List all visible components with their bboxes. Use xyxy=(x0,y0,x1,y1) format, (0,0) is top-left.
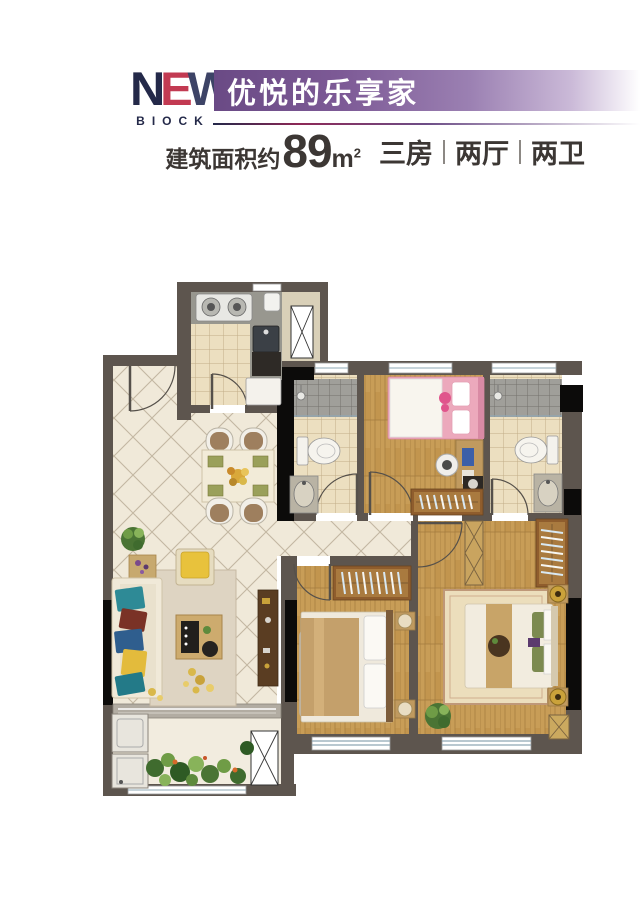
layout-summary: 三房 两厅 两卫 xyxy=(379,132,585,171)
plant-icon xyxy=(121,527,145,551)
hallway-floor xyxy=(277,521,413,556)
layout-bedrooms: 三房 xyxy=(379,132,433,171)
window-bedroom3 xyxy=(389,363,452,373)
area-value: 89 xyxy=(282,131,331,171)
window-bedroom2 xyxy=(312,737,390,750)
balcony-vent-icon xyxy=(251,731,278,785)
washer-icon xyxy=(112,714,148,752)
fridge-icon xyxy=(246,378,281,405)
nightstand-top xyxy=(395,612,415,630)
plant-icon xyxy=(425,703,451,729)
laundry-sink-icon xyxy=(112,754,148,788)
window-kitchen xyxy=(253,284,281,291)
tv-cabinet xyxy=(258,590,278,686)
slogan-banner: 优悦的乐享家 xyxy=(214,70,640,111)
brand-logo: NEW BIOCK xyxy=(130,66,216,128)
wardrobe xyxy=(333,566,411,600)
divider xyxy=(519,140,521,164)
duct-vent-icon xyxy=(291,306,313,358)
kitchen-cabinet xyxy=(252,352,281,376)
nightstand-bottom xyxy=(548,688,568,706)
slogan-text: 优悦的乐享家 xyxy=(227,70,419,112)
sofa xyxy=(112,578,162,698)
dining-chair xyxy=(206,498,233,524)
floor-plan xyxy=(96,276,590,806)
toilet-icon xyxy=(515,436,558,464)
toilet-icon xyxy=(297,437,340,465)
logo-word: NEW xyxy=(130,66,219,112)
layout-halls: 两厅 xyxy=(455,132,509,171)
stove-icon xyxy=(196,294,252,321)
wardrobe xyxy=(536,519,568,587)
layout-baths: 两卫 xyxy=(531,132,585,171)
header-rule xyxy=(213,123,640,125)
nightstand-bottom xyxy=(395,700,415,718)
spec-line: 建筑面积约 89 m2 三房 两厅 两卫 xyxy=(0,131,585,175)
kitchen-sink-icon xyxy=(253,326,279,352)
wardrobe xyxy=(411,489,483,515)
kids-bed xyxy=(388,377,484,439)
divider xyxy=(443,140,445,164)
coffee-table xyxy=(176,615,222,659)
area-label: 建筑面积约 xyxy=(165,140,280,174)
kettle-icon xyxy=(264,293,280,311)
desk-chair-icon xyxy=(436,454,458,476)
area-unit: m2 xyxy=(332,145,361,174)
window-bath1 xyxy=(315,363,348,373)
sink-icon xyxy=(290,476,318,513)
nightstand-top xyxy=(548,585,568,603)
window-master xyxy=(442,737,531,750)
master-corner-hatch xyxy=(549,715,569,739)
side-table xyxy=(129,555,156,580)
bed xyxy=(301,610,393,722)
logo-subword: BIOCK xyxy=(130,114,216,128)
sink-icon xyxy=(534,474,562,512)
dining-chair xyxy=(240,498,267,524)
master-column-hatch xyxy=(465,521,483,585)
bed xyxy=(465,604,558,688)
window-bath2 xyxy=(492,363,556,373)
flyer-page: NEW BIOCK 优悦的乐享家 建筑面积约 89 m2 三房 两厅 两卫 xyxy=(0,0,640,920)
dining-table xyxy=(202,450,274,502)
armchair xyxy=(176,549,214,585)
